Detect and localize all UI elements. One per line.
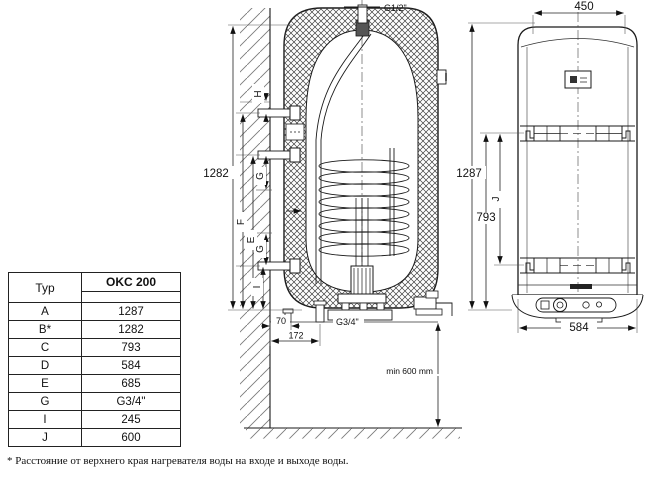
value-cell: 793 bbox=[82, 339, 181, 357]
value-cell: 584 bbox=[82, 357, 181, 375]
table-row: I245 bbox=[9, 411, 181, 429]
param-cell: B* bbox=[9, 321, 82, 339]
bottom-connection-label: G3/4" bbox=[336, 317, 359, 327]
value-cell: G3/4" bbox=[82, 393, 181, 411]
label-h: H bbox=[253, 90, 264, 97]
top-fitting-pipe bbox=[358, 5, 367, 23]
param-cell: I bbox=[9, 411, 82, 429]
param-cell: D bbox=[9, 357, 82, 375]
clearance-note: min 600 mm bbox=[386, 366, 433, 376]
value-cell: 685 bbox=[82, 375, 181, 393]
spec-col-model: OKC 200 bbox=[82, 273, 181, 292]
dim-70-label: 70 bbox=[276, 316, 286, 326]
thermostat-knob bbox=[554, 299, 567, 312]
table-row: A1287 bbox=[9, 303, 181, 321]
technical-drawing-page: G1/2" bbox=[0, 0, 650, 477]
table-row: D584 bbox=[9, 357, 181, 375]
table-row: B*1282 bbox=[9, 321, 181, 339]
dim-172-label: 172 bbox=[288, 331, 303, 341]
spec-col-typ: Typ bbox=[9, 273, 82, 303]
top-connection-label: G1/2" bbox=[384, 3, 407, 13]
dim-1287-label: 1287 bbox=[456, 168, 482, 180]
param-cell: E bbox=[9, 375, 82, 393]
panel-inset bbox=[536, 298, 616, 312]
floor-hatch bbox=[246, 429, 460, 439]
front-view: 450 1287 793 J 584 bbox=[452, 1, 643, 334]
param-cell: G bbox=[9, 393, 82, 411]
label-g-upper: G bbox=[255, 172, 266, 180]
label-f: F bbox=[236, 219, 247, 225]
label-i: I bbox=[252, 286, 263, 289]
front-body bbox=[518, 27, 637, 295]
dim-793-label: 793 bbox=[476, 212, 495, 224]
dim-1282-label: 1282 bbox=[203, 168, 229, 180]
table-row: E685 bbox=[9, 375, 181, 393]
value-cell: 245 bbox=[82, 411, 181, 429]
sensor-fitting bbox=[437, 70, 446, 84]
value-cell: 1287 bbox=[82, 303, 181, 321]
param-cell: J bbox=[9, 429, 82, 447]
param-cell: C bbox=[9, 339, 82, 357]
label-j: J bbox=[491, 197, 502, 202]
side-section-view: G1/2" bbox=[199, 0, 462, 439]
table-row: J600 bbox=[9, 429, 181, 447]
value-cell: 600 bbox=[82, 429, 181, 447]
label-g-lower: G bbox=[255, 245, 266, 253]
footnote: * Расстояние от верхнего края нагревател… bbox=[7, 455, 348, 467]
table-row: GG3/4" bbox=[9, 393, 181, 411]
param-cell: A bbox=[9, 303, 82, 321]
rating-plate bbox=[565, 71, 591, 88]
spec-table: Typ OKC 200 A1287 B*1282 C793 D584 E685 … bbox=[8, 272, 181, 447]
label-e: E bbox=[246, 236, 257, 243]
spec-subheader-cell bbox=[82, 292, 181, 303]
dim-450-label: 450 bbox=[574, 1, 593, 13]
dim-584-label: 584 bbox=[569, 322, 589, 334]
table-row: C793 bbox=[9, 339, 181, 357]
value-cell: 1282 bbox=[82, 321, 181, 339]
front-label-strip bbox=[570, 284, 592, 289]
